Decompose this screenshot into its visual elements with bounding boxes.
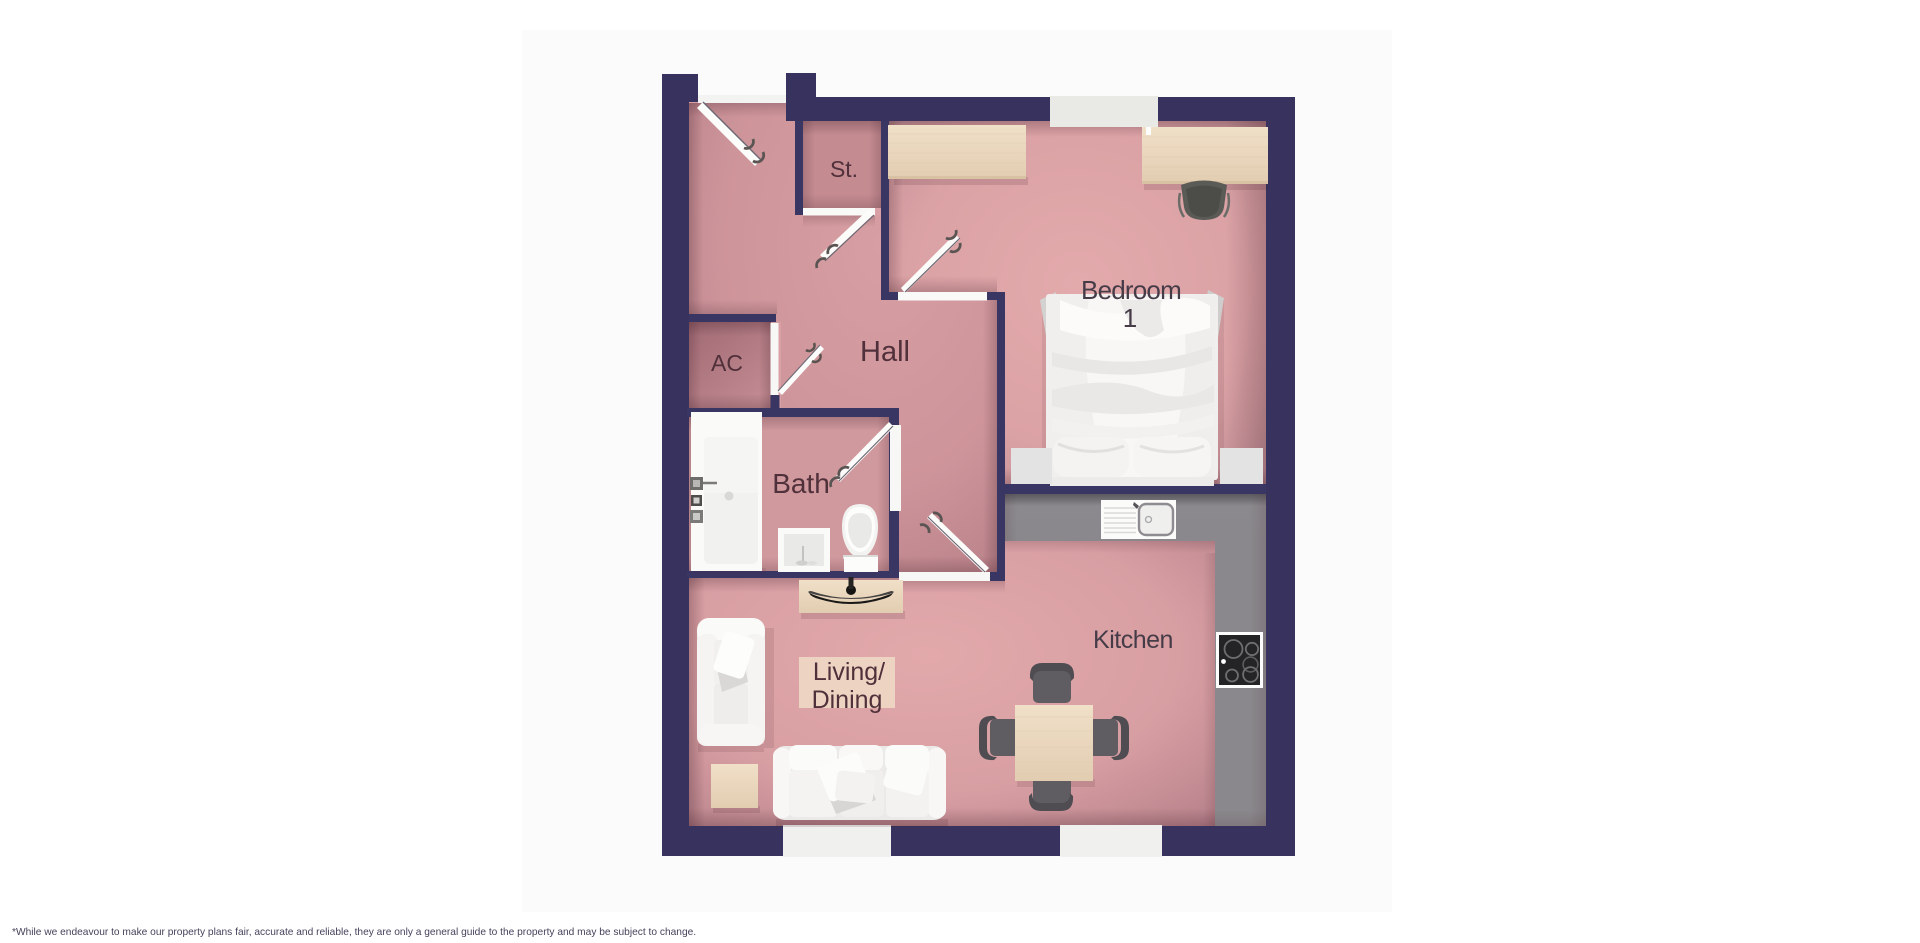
svg-text:*While we endeavour to make ou: *While we endeavour to make our property… <box>12 927 696 938</box>
svg-text:Dining: Dining <box>812 686 883 714</box>
svg-text:St.: St. <box>830 156 858 182</box>
svg-text:Hall: Hall <box>860 336 910 368</box>
svg-text:Bath: Bath <box>772 468 830 499</box>
svg-text:1: 1 <box>1123 303 1137 333</box>
svg-text:AC: AC <box>711 350 743 376</box>
svg-text:Bedroom: Bedroom <box>1081 275 1181 305</box>
svg-text:Living/: Living/ <box>813 658 885 686</box>
svg-text:Kitchen: Kitchen <box>1093 626 1173 654</box>
